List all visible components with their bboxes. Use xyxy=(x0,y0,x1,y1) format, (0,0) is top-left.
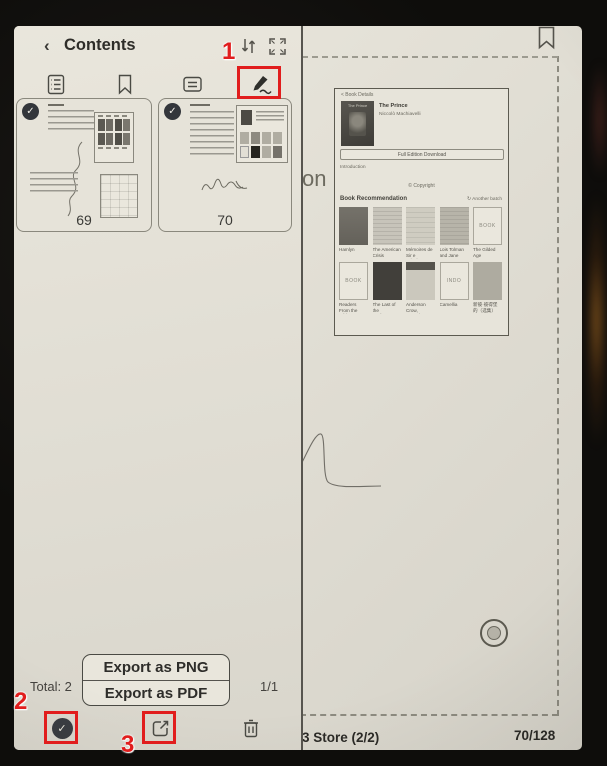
book-item[interactable]: Hamlyn xyxy=(339,207,368,259)
book-item-cover: BOOK xyxy=(339,262,368,300)
book-item-cover xyxy=(373,262,402,300)
tab-bookmarks[interactable] xyxy=(107,67,143,101)
book-item[interactable]: The American Crisis xyxy=(373,207,402,259)
callout-box-1-scribble-tab xyxy=(237,66,281,99)
book-detail-card: < Book Details The Prince The Prince Nic… xyxy=(334,88,509,336)
pen-scribble xyxy=(293,420,403,498)
book-item-title: The Last of the Bushrangers… xyxy=(373,302,402,314)
bookmark-icon[interactable] xyxy=(538,26,555,50)
ereader-screen: on < Book Details The Prince The Prince … xyxy=(14,26,582,750)
callout-box-2-select-all xyxy=(44,711,78,744)
book-cover-title: The Prince xyxy=(348,103,367,108)
book-details-back-link[interactable]: < Book Details xyxy=(341,92,373,98)
book-item[interactable]: BOOKReaders From the White xyxy=(339,262,368,314)
book-item-title: Lois Tolman and Jane Hustage xyxy=(440,247,469,259)
thumb-mini-cover xyxy=(241,110,252,125)
thumb-mini-text xyxy=(256,111,284,123)
book-item-title: Camellia xyxy=(440,302,469,314)
fullscreen-icon[interactable] xyxy=(268,37,287,56)
thumb-text-block xyxy=(190,111,234,157)
panel-title: Contents xyxy=(64,36,136,55)
selection-dashed-border-right xyxy=(557,56,559,716)
book-item-cover xyxy=(373,207,402,245)
book-item[interactable]: Anderson Crow, Detective xyxy=(406,262,435,314)
floating-nav-ball-center xyxy=(487,626,501,640)
book-item[interactable]: Mémoires de Sir e Principes xyxy=(406,207,435,259)
export-as-png-item[interactable]: Export as PNG xyxy=(83,655,229,680)
thumbnail-page-number: 69 xyxy=(16,212,152,228)
book-item-title: 新彼·彼得堡的（选集） xyxy=(473,302,502,314)
book-item-cover: INDO xyxy=(440,262,469,300)
delete-button[interactable] xyxy=(234,712,268,744)
book-cover-the-prince[interactable]: The Prince xyxy=(341,101,374,146)
book-item[interactable]: INDOCamellia xyxy=(440,262,469,314)
callout-number-1: 1 xyxy=(222,38,235,66)
thumb-text-line xyxy=(190,104,210,106)
store-chapter-label: 3 Store (2/2) xyxy=(302,730,379,745)
photo-background: on < Book Details The Prince The Prince … xyxy=(0,0,607,766)
page-progress: 70/128 xyxy=(514,728,555,743)
thumb-mini-captions xyxy=(98,147,130,149)
copyright-label: © Copyright xyxy=(335,183,508,189)
thumb-book-detail-image xyxy=(236,105,288,163)
thumb-text-block xyxy=(48,110,94,133)
book-item-cover xyxy=(406,207,435,245)
full-edition-download-button[interactable]: Full Edition Download xyxy=(340,149,504,160)
thumb-pen-scribble xyxy=(196,166,258,200)
callout-number-3: 3 xyxy=(121,731,134,759)
book-item-title: Mémoires de Sir e Principes xyxy=(406,247,435,259)
book-item-cover xyxy=(406,262,435,300)
book-item-cover xyxy=(473,262,502,300)
thumb-text-block xyxy=(30,172,78,195)
book-item-title: Anderson Crow, Detective xyxy=(406,302,435,314)
book-item-cover: BOOK xyxy=(473,207,502,245)
book-item[interactable]: BOOKThe Gilded Age xyxy=(473,207,502,259)
total-count-label: Total: 2 xyxy=(30,679,72,694)
export-as-pdf-item[interactable]: Export as PDF xyxy=(83,680,229,705)
thumb-mini-covers-row xyxy=(95,131,133,145)
thumbnail-selected-check-icon[interactable]: ✓ xyxy=(22,103,39,120)
callout-number-2: 2 xyxy=(14,688,27,716)
panel-page-indicator: 1/1 xyxy=(260,679,278,694)
book-item-title: The American Crisis xyxy=(373,247,402,259)
book-item-title: The Gilded Age xyxy=(473,247,502,259)
export-popup-menu: Export as PNG Export as PDF xyxy=(82,654,230,706)
book-item-title: Readers From the White xyxy=(339,302,368,314)
background-light-smear xyxy=(592,60,607,180)
book-item-title: Hamlyn xyxy=(339,247,368,259)
machiavelli-portrait xyxy=(349,112,366,136)
thumbnail-page-number: 70 xyxy=(158,212,292,228)
selection-dashed-border-top xyxy=(302,56,558,58)
introduction-label: Introduction xyxy=(340,165,366,170)
contents-panel: ‹ Contents xyxy=(14,26,303,750)
book-title: The Prince xyxy=(379,103,408,109)
book-item-cover xyxy=(440,207,469,245)
thumb-book-grid-image xyxy=(94,112,134,163)
another-batch-link[interactable]: ↻ Another batch xyxy=(467,197,502,202)
background-light-smear xyxy=(586,190,607,450)
thumb-mini-covers-row xyxy=(95,117,133,131)
thumb-text-line xyxy=(48,104,64,106)
book-item[interactable]: Lois Tolman and Jane Hustage xyxy=(440,207,469,259)
recommendation-grid: HamlynThe American CrisisMémoires de Sir… xyxy=(339,207,506,314)
page-text-fragment: on xyxy=(302,166,326,192)
book-item[interactable]: 新彼·彼得堡的（选集） xyxy=(473,262,502,314)
book-item[interactable]: The Last of the Bushrangers… xyxy=(373,262,402,314)
book-item-cover xyxy=(339,207,368,245)
sort-icon[interactable] xyxy=(240,37,257,55)
back-chevron-icon[interactable]: ‹ xyxy=(44,36,50,56)
selection-dashed-border-bottom xyxy=(300,714,558,716)
thumb-mini-grid xyxy=(240,132,288,158)
tab-annotations[interactable] xyxy=(174,67,210,101)
thumbnail-selected-check-icon[interactable]: ✓ xyxy=(164,103,181,120)
tab-toc[interactable] xyxy=(38,67,74,101)
recommendation-title: Book Recommendation xyxy=(340,196,407,202)
book-author: Niccolò Machiavelli xyxy=(379,112,421,117)
callout-box-3-share xyxy=(142,711,176,744)
